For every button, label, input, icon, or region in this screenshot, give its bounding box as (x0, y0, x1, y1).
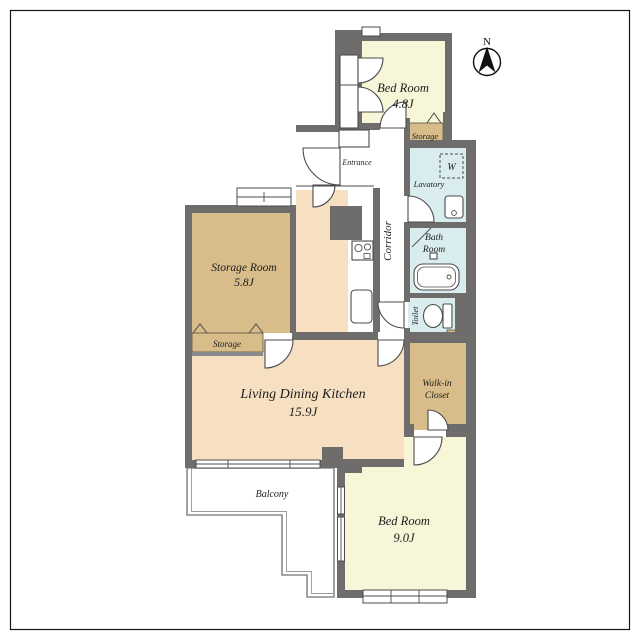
wall (466, 140, 476, 598)
wall (345, 332, 378, 340)
window-ldk-south (196, 460, 320, 468)
label-bathroom-1: Bath (425, 233, 443, 243)
entrance-shoe-cabinet (339, 130, 369, 147)
wall (404, 222, 410, 302)
wall (343, 459, 404, 467)
wall (404, 332, 466, 343)
label-balcony: Balcony (256, 489, 289, 500)
label-toilet: Toilet (410, 306, 420, 326)
wall (404, 148, 410, 196)
wall (292, 332, 345, 340)
wall (330, 206, 362, 240)
wall (404, 328, 410, 437)
wall (455, 296, 466, 332)
window-bedroom2-south (363, 590, 447, 603)
label-walkin-2: Closet (425, 391, 450, 401)
room-ldk-main (192, 340, 404, 466)
window-bedroom1-top (362, 27, 380, 36)
stove-icon (352, 241, 373, 260)
window-storage-room-bay (237, 188, 291, 206)
bedroom1-closet (340, 55, 358, 128)
wall (290, 213, 296, 333)
toilet-icon (424, 304, 453, 328)
wall (410, 222, 466, 228)
label-storage-room-name: Storage Room (211, 262, 276, 274)
wall (404, 140, 466, 148)
label-storage-left: Storage (213, 339, 241, 349)
storage-left-divider (192, 352, 263, 356)
wall (404, 424, 414, 437)
wall (446, 424, 466, 437)
label-bedroom1-name: Bed Room (377, 81, 429, 95)
wall (358, 83, 362, 87)
label-walkin-1: Walk-in (422, 379, 451, 389)
label-storage-top: Storage (412, 131, 439, 141)
washbasin-icon (445, 196, 463, 218)
floor-plan-canvas: Bed Room 4.8J Storage Lavatory W Bath Ro… (0, 0, 640, 640)
label-ldk-size: 15.9J (289, 404, 319, 419)
wall (296, 125, 340, 132)
label-bedroom2-size: 9.0J (393, 531, 416, 545)
label-storage-room-size: 5.8J (234, 277, 254, 289)
kitchen-sink-icon (351, 290, 372, 323)
label-corridor: Corridor (382, 220, 394, 260)
label-lavatory: Lavatory (413, 179, 445, 189)
wall (185, 205, 192, 468)
compass-n-label: N (483, 36, 491, 48)
label-bedroom1-size: 4.8J (392, 97, 415, 111)
label-ldk-name: Living Dining Kitchen (239, 387, 365, 402)
label-bathroom-2: Room (422, 245, 445, 255)
window-bedroom2-west (338, 487, 345, 561)
wall (335, 33, 340, 132)
label-entrance: Entrance (341, 158, 372, 167)
label-bedroom2-name: Bed Room (378, 514, 430, 528)
floor-plan-page: Bed Room 4.8J Storage Lavatory W Bath Ro… (0, 0, 640, 640)
